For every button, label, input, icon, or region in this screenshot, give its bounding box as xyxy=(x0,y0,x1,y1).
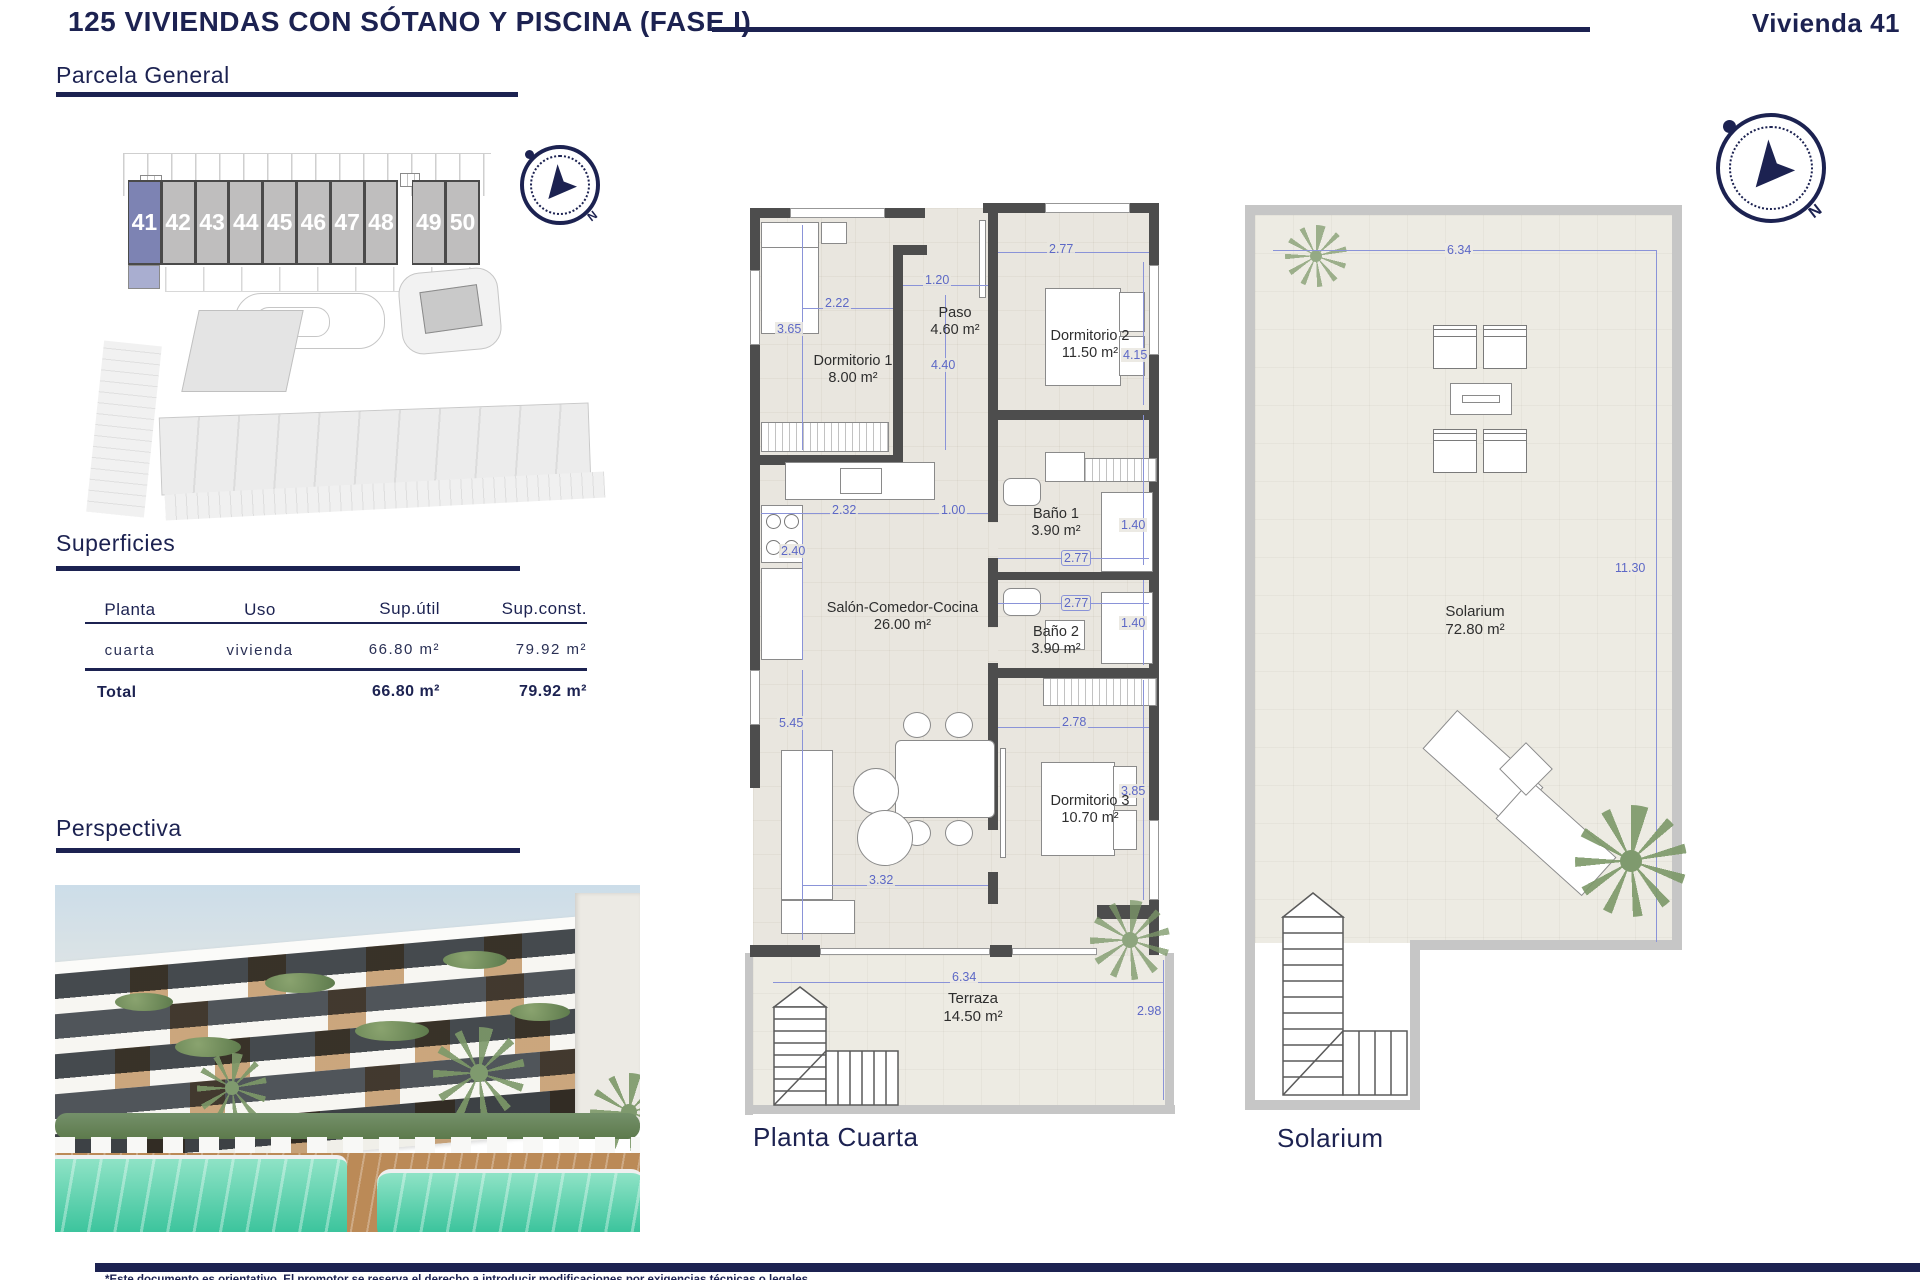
room-name: Dormitorio 2 xyxy=(1051,328,1130,344)
dining-chair xyxy=(945,820,973,846)
superficies-rule xyxy=(56,566,520,571)
room-name: Baño 1 xyxy=(1033,506,1079,522)
compass-dot xyxy=(1723,120,1736,133)
terraza-glass-dorm3 xyxy=(1012,948,1097,955)
parcela-rule xyxy=(56,92,518,97)
site-edge-hatch xyxy=(86,340,162,517)
terraza-palm xyxy=(1090,900,1170,980)
dim-dorm3-width: 2.78 xyxy=(1060,715,1088,729)
section-heading-superficies: Superficies xyxy=(56,530,175,557)
window-dorm1 xyxy=(750,270,760,345)
wardrobe-dorm3 xyxy=(1043,678,1157,706)
dim-salon-width: 3.32 xyxy=(867,873,895,887)
terraza-glass-salon xyxy=(820,948,990,955)
dim-solarium-width: 6.34 xyxy=(1445,243,1473,257)
table-cell-sup-const: 79.92 m² xyxy=(455,641,587,658)
dim-bano2-width: 2.77 xyxy=(1061,595,1091,611)
wall-dorm1-jog xyxy=(893,245,927,255)
shower-bano1 xyxy=(1101,492,1153,572)
solarium-wall-top xyxy=(1245,205,1682,215)
toilet-bano2 xyxy=(1003,588,1041,616)
dining-table xyxy=(895,740,995,818)
site-pool xyxy=(419,284,482,334)
sofa-chaise xyxy=(781,900,855,934)
dimline xyxy=(802,225,803,450)
floor-plan-solarium: 6.34 11.30 Solarium 72.80 m² xyxy=(1245,205,1682,1115)
window-dorm2-top xyxy=(1045,203,1130,213)
solarium-chair xyxy=(1433,429,1477,473)
page-title: 125 VIVIENDAS CON SÓTANO Y PISCINA (FASE… xyxy=(68,6,751,38)
sink-bano1 xyxy=(1045,452,1085,482)
window-dorm2 xyxy=(1149,265,1159,355)
solarium-table-inner xyxy=(1462,395,1500,403)
dim-cocina-width: 2.32 xyxy=(830,503,858,517)
room-name: Baño 2 xyxy=(1033,624,1079,640)
balcony-plant xyxy=(443,951,507,969)
unit-title: Vivienda 41 xyxy=(1600,8,1900,39)
compass-north-label: N xyxy=(1806,201,1826,222)
compass-arrow-icon xyxy=(534,158,585,209)
dining-chair xyxy=(945,712,973,738)
room-label-dormitorio1: Dormitorio 1 8.00 m² xyxy=(793,353,913,387)
perspective-render xyxy=(55,885,640,1232)
door-leaf-dorm2 xyxy=(979,220,986,298)
plan-caption: Solarium xyxy=(1277,1123,1384,1154)
room-label-bano2: Baño 2 3.90 m² xyxy=(1015,624,1097,658)
dim-cocina-pass: 1.00 xyxy=(939,503,967,517)
dim-bano1-width: 2.77 xyxy=(1061,550,1091,566)
render-hedge xyxy=(55,1113,640,1139)
render-pool-right xyxy=(377,1169,640,1232)
table-header-sup-const: Sup.const. xyxy=(455,599,587,619)
site-unit-46: 46 xyxy=(297,180,331,265)
pillow-dorm1 xyxy=(761,222,819,248)
solarium-chair xyxy=(1433,325,1477,369)
room-name: Dormitorio 1 xyxy=(814,353,893,369)
balcony-plant xyxy=(115,993,173,1011)
dim-solarium-height: 11.30 xyxy=(1613,561,1647,575)
terraza-wall-left xyxy=(745,953,753,1115)
dim-dorm1-width: 2.22 xyxy=(823,296,851,310)
site-unit-50: 50 xyxy=(446,180,480,265)
pouf xyxy=(853,768,899,814)
site-unit-42: 42 xyxy=(162,180,196,265)
table-cell-planta: cuarta xyxy=(85,642,175,659)
dim-dorm1-height: 3.65 xyxy=(775,322,803,336)
room-label-terraza: Terraza 14.50 m² xyxy=(913,990,1033,1025)
dim-terraza-width: 6.34 xyxy=(950,970,978,984)
site-block-left xyxy=(181,310,303,392)
tv-unit xyxy=(1000,748,1006,858)
window-dorm3 xyxy=(1149,820,1159,900)
wardrobe-dorm1 xyxy=(761,422,889,452)
solarium-chair xyxy=(1483,325,1527,369)
table-total-sup-const: 79.92 m² xyxy=(455,683,587,701)
room-label-dormitorio2: Dormitorio 2 11.50 m² xyxy=(1030,328,1150,362)
room-area: 8.00 m² xyxy=(828,370,877,386)
compass-north-label: N xyxy=(585,208,600,224)
room-area: 4.60 m² xyxy=(930,322,979,338)
room-area: 72.80 m² xyxy=(1445,621,1504,638)
table-cell-uso: vivienda xyxy=(210,642,310,659)
site-unit-49: 49 xyxy=(412,180,446,265)
title-divider xyxy=(712,27,1590,32)
terraza-wall-right xyxy=(1165,953,1174,1113)
site-unit-44: 44 xyxy=(229,180,263,265)
dim-salon-height: 5.45 xyxy=(777,716,805,730)
room-name: Paso xyxy=(938,305,971,321)
palm-tree xyxy=(433,1027,525,1119)
balcony-plant xyxy=(265,973,335,993)
room-label-dormitorio3: Dormitorio 3 10.70 m² xyxy=(1030,793,1150,827)
room-area: 26.00 m² xyxy=(874,617,931,633)
table-total-line xyxy=(85,668,587,671)
brochure-page: 125 VIVIENDAS CON SÓTANO Y PISCINA (FASE… xyxy=(0,0,1920,1280)
room-name: Salón-Comedor-Cocina xyxy=(827,600,979,616)
section-heading-parcela: Parcela General xyxy=(56,62,230,89)
wall-salon-bottom-left xyxy=(750,945,820,957)
sofa xyxy=(781,750,833,900)
dim-terraza-height: 2.98 xyxy=(1135,1004,1163,1018)
room-label-bano1: Baño 1 3.90 m² xyxy=(1015,506,1097,540)
compass-arrow-icon xyxy=(1736,131,1806,201)
render-pool-left xyxy=(55,1155,347,1232)
floor-plan-planta-cuarta: 3.65 2.22 1.20 4.40 2.77 4.15 2.32 1.00 … xyxy=(745,200,1185,1115)
dimline xyxy=(1163,960,1164,1100)
terraza-stairs xyxy=(770,985,905,1110)
balcony-plant xyxy=(510,1003,570,1021)
solarium-chair xyxy=(1483,429,1527,473)
window-cocina xyxy=(750,670,760,725)
table-total-label: Total xyxy=(97,684,137,702)
wall-bano2-bottom xyxy=(988,668,1159,678)
room-name: Dormitorio 3 xyxy=(1051,793,1130,809)
door-bano1 xyxy=(988,522,998,558)
dimline xyxy=(803,885,988,886)
site-units-row: 41424344454647484950 xyxy=(128,180,480,265)
wall-salon-bottom-mid xyxy=(990,945,1012,957)
site-unit-48: 48 xyxy=(365,180,399,265)
dimline xyxy=(802,670,803,940)
toilet-bano1 xyxy=(1003,478,1041,506)
dim-dorm2-width: 2.77 xyxy=(1047,242,1075,256)
wall-dorm2-bottom xyxy=(988,410,1159,420)
solarium-stairs xyxy=(1275,891,1425,1116)
solarium-wall-left xyxy=(1245,205,1255,1110)
room-area: 11.50 m² xyxy=(1062,345,1118,361)
table-cell-sup-util: 66.80 m² xyxy=(330,641,440,658)
solarium-plant xyxy=(1285,225,1347,287)
table-header-uso: Uso xyxy=(210,600,310,620)
table-header-line xyxy=(85,622,587,624)
pillow-dorm2 xyxy=(1119,292,1145,332)
footer-disclaimer: *Este documento es orientativo. El promo… xyxy=(105,1274,811,1280)
plan-caption: Planta Cuarta xyxy=(753,1122,918,1153)
nightstand-dorm1 xyxy=(821,222,847,244)
site-unit-43: 43 xyxy=(196,180,230,265)
dim-cocina-height: 2.40 xyxy=(779,544,807,558)
site-unit-45: 45 xyxy=(263,180,297,265)
solarium-wall-bottom xyxy=(1410,940,1682,950)
room-area: 14.50 m² xyxy=(943,1008,1002,1025)
dim-paso-width: 1.20 xyxy=(923,273,951,287)
site-unit-41: 41 xyxy=(128,180,162,265)
table-header-planta: Planta xyxy=(85,600,175,620)
solarium-palm xyxy=(1575,805,1687,917)
dimline xyxy=(1143,415,1144,565)
room-name: Solarium xyxy=(1445,603,1504,620)
dim-bano2-height: 1.40 xyxy=(1119,616,1147,630)
room-label-solarium: Solarium 72.80 m² xyxy=(1420,603,1530,638)
site-compass-icon: N xyxy=(520,145,600,225)
site-unit41-terrace xyxy=(128,265,160,289)
window-entry xyxy=(790,208,885,218)
room-area: 10.70 m² xyxy=(1061,810,1118,826)
dimline xyxy=(802,520,803,660)
room-area: 3.90 m² xyxy=(1031,641,1080,657)
kitchen-sink xyxy=(840,468,882,494)
plan-compass-icon: N xyxy=(1716,113,1826,223)
room-label-paso: Paso 4.60 m² xyxy=(915,305,995,339)
balcony-plant xyxy=(355,1021,429,1041)
site-unit-47: 47 xyxy=(331,180,365,265)
dim-bano1-height: 1.40 xyxy=(1119,518,1147,532)
room-label-salon: Salón-Comedor-Cocina 26.00 m² xyxy=(820,600,985,634)
room-area: 3.90 m² xyxy=(1031,523,1080,539)
dim-paso-height: 4.40 xyxy=(929,358,957,372)
perspectiva-rule xyxy=(56,848,520,853)
table-header-sup-util: Sup.útil xyxy=(330,599,440,619)
pouf xyxy=(857,810,913,866)
room-name: Terraza xyxy=(948,990,998,1007)
door-bano2 xyxy=(988,627,998,663)
site-units-gap xyxy=(398,180,412,265)
wall-dorm3-left-lower xyxy=(988,872,998,904)
dining-chair xyxy=(903,712,931,738)
wall-bano-divider xyxy=(988,572,1159,580)
kitchen-fridge xyxy=(761,568,803,660)
section-heading-perspectiva: Perspectiva xyxy=(56,815,182,842)
footer-bar xyxy=(95,1263,1920,1272)
table-total-sup-util: 66.80 m² xyxy=(330,683,440,701)
